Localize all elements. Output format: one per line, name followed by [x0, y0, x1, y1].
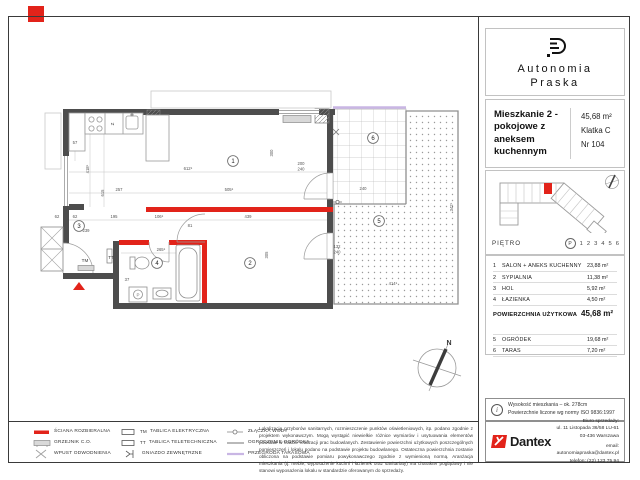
washing-machine-icon: P [129, 287, 147, 302]
bathtub-icon [176, 245, 200, 301]
fixture-label: TM [82, 258, 89, 263]
total-area-row: POWIERZCHNIA UŻYTKOWA 45,68 m² [493, 306, 617, 320]
legend-item: GRZEJNIK C.O. [33, 437, 111, 448]
dimension-label: 62 [55, 214, 60, 219]
fixture-label: TT [108, 255, 114, 260]
legend-item: WPUST ODWODNIENIA [33, 448, 111, 459]
floor-number: 4 [601, 241, 604, 247]
legend-column: ŚCIANA ROZBIERALNAGRZEJNIK C.O.WPUST ODW… [33, 426, 111, 459]
note-height: Wysokość mieszkania – ok. 278cm [508, 402, 587, 408]
sheet-frame: P [8, 16, 630, 463]
table-row: 5OGRÓDEK19,68 m² [493, 335, 617, 346]
svg-text:P: P [136, 292, 139, 297]
disclaimer-text: Lokalizację przyborów sanitarnych, rozmi… [259, 426, 473, 475]
apartment-title: Mieszkanie 2 - pokojowe z aneksem kuchen… [486, 100, 570, 167]
developer-logo: Dantex [491, 433, 551, 450]
red-demountable-walls [119, 207, 333, 303]
floor-selector: P123456 [565, 238, 619, 249]
office-email: email: autonomiapraska@dantex.pl [557, 444, 619, 456]
dimension-label: 439 [245, 214, 253, 219]
brand-logo-icon [542, 35, 568, 61]
dimension-label: 418⁵ [85, 164, 90, 173]
dimension-label: 240 [298, 167, 306, 172]
developer-box: Dantex Biuro sprzedaży: ul. 11 Listopada… [485, 421, 625, 462]
total-area-value: 45,68 m² [581, 309, 617, 318]
dimension-label: 342⁵ [449, 202, 454, 211]
dimension-label: 37 [125, 277, 130, 282]
kitchen-annex [69, 113, 169, 161]
room-rows: 1SALON + ANEKS KUCHENNY23,88 m²2SYPIALNI… [493, 261, 617, 306]
radiator-icon [283, 116, 311, 123]
legend-item: TMTABLICA ELEKTRYCZNA [121, 426, 217, 437]
dimension-label: 300 [269, 149, 274, 157]
fixture-label: N [446, 340, 451, 347]
entrance-arrow-icon [73, 282, 85, 290]
floor-plan: P [9, 17, 479, 421]
office-phone: telefon: (22) 123 75 94 [570, 459, 619, 464]
tm-board [78, 266, 94, 271]
floorplan-sheet: P [0, 0, 640, 480]
floor-number: 1 [580, 241, 583, 247]
shaft [41, 227, 63, 271]
legend-item: ŚCIANA ROZBIERALNA [33, 426, 111, 437]
dimension-label: 240 [360, 186, 368, 191]
office-address1: ul. 11 Listopada 36/58 LU-61 [557, 426, 619, 431]
fence-icon [227, 438, 245, 448]
compass-icon [413, 344, 461, 391]
total-area-label: POWIERZCHNIA UŻYTKOWA [493, 312, 581, 318]
bathroom-fixtures: P [129, 245, 200, 302]
dimension-label: 106⁵ [155, 214, 164, 219]
dimension-label: 239 [83, 228, 91, 233]
dimension-label: 81 [188, 223, 193, 228]
office-label: Biuro sprzedaży: [583, 419, 619, 424]
floor-label: PIĘTRO [492, 240, 521, 247]
legend-item: TTTABLICA TELETECHNICZNA [121, 437, 217, 448]
developer-name: Dantex [510, 434, 551, 449]
brand-name-line2: Praska [530, 77, 579, 89]
tall-cabinet [146, 115, 169, 161]
legend-column: TMTABLICA ELEKTRYCZNATTTABLICA TELETECHN… [121, 426, 217, 459]
socket-icon [121, 449, 139, 459]
drain-icon [33, 449, 51, 459]
brand-box: Autonomia Praska [485, 28, 625, 96]
floor-number: 2 [587, 241, 590, 247]
partition-icon [227, 449, 245, 459]
toilet-icon [130, 257, 149, 269]
dimension-label: 195 [111, 214, 119, 219]
room-table-box: 1SALON + ANEKS KUCHENNY23,88 m²2SYPIALNI… [485, 255, 625, 355]
water-icon [227, 427, 245, 437]
dimension-label: 265⁵ [157, 247, 166, 252]
table-row: 4ŁAZIENKA4,50 m² [493, 295, 617, 306]
dimension-label: 257 [116, 187, 124, 192]
dimension-label: 240 [334, 250, 342, 255]
info-icon: i [491, 404, 503, 416]
apartment-number: Nr 104 [581, 140, 624, 149]
dimension-label: 57 [73, 140, 78, 145]
dimension-label: 414⁵ [389, 281, 398, 286]
dimension-label: 200 [298, 161, 306, 166]
apartment-staircase: Klatka C [581, 126, 624, 135]
apartment-info-box: Mieszkanie 2 - pokojowe z aneksem kuchen… [485, 99, 625, 168]
building-minimap-box: PIĘTRO P123456 [485, 170, 625, 255]
sink-icon [126, 114, 138, 129]
bottom-strip: ŚCIANA ROZBIERALNAGRZEJNIK C.O.WPUST ODW… [9, 421, 478, 463]
dantex-logo-icon [491, 433, 508, 450]
dimension-label: 615 [100, 189, 105, 197]
table-row: 1SALON + ANEKS KUCHENNY23,88 m² [493, 261, 617, 272]
radiator-icon [33, 438, 51, 448]
floor-number: 6 [616, 241, 619, 247]
table-row: 2SYPIALNIA11,38 m² [493, 272, 617, 283]
minimap-compass-icon [605, 175, 619, 189]
right-column: Autonomia Praska Mieszkanie 2 - pokojowe… [478, 17, 630, 462]
floor-number: 5 [609, 241, 612, 247]
board-icon [121, 438, 139, 448]
floor-marker: P [565, 238, 576, 249]
note-norm: Powierzchnie liczone wg normy ISO 9836:1… [508, 410, 615, 416]
dimension-label: 505⁵ [225, 187, 234, 192]
dimension-label: 62 [73, 214, 78, 219]
wall-red-icon [33, 427, 51, 437]
office-address2: 03-436 Warszawa [580, 434, 619, 439]
dimension-label: 305 [264, 251, 269, 259]
table-row: 6TARAS7,20 m² [493, 346, 617, 357]
fixture-label: Z [110, 122, 115, 125]
floor-number: 3 [594, 241, 597, 247]
brand-name-line1: Autonomia [517, 63, 592, 75]
washbasin-icon [153, 288, 171, 299]
outdoor-rows: 5OGRÓDEK19,68 m²6TARAS7,20 m² [493, 334, 617, 357]
board-icon [121, 427, 139, 437]
table-row: 3HOL5,92 m² [493, 283, 617, 294]
terrace-area [333, 108, 406, 205]
unit-highlight [544, 183, 552, 194]
dimension-label: 132 [334, 244, 342, 249]
building-minimap [486, 171, 624, 233]
apartment-area: 45,68 m² [581, 112, 624, 121]
sales-office-contact: Biuro sprzedaży: ul. 11 Listopada 36/58 … [551, 418, 619, 465]
dimension-label: 612⁵ [184, 166, 193, 171]
legend-item: GNIAZDO ZEWNĘTRZNE [121, 448, 217, 459]
